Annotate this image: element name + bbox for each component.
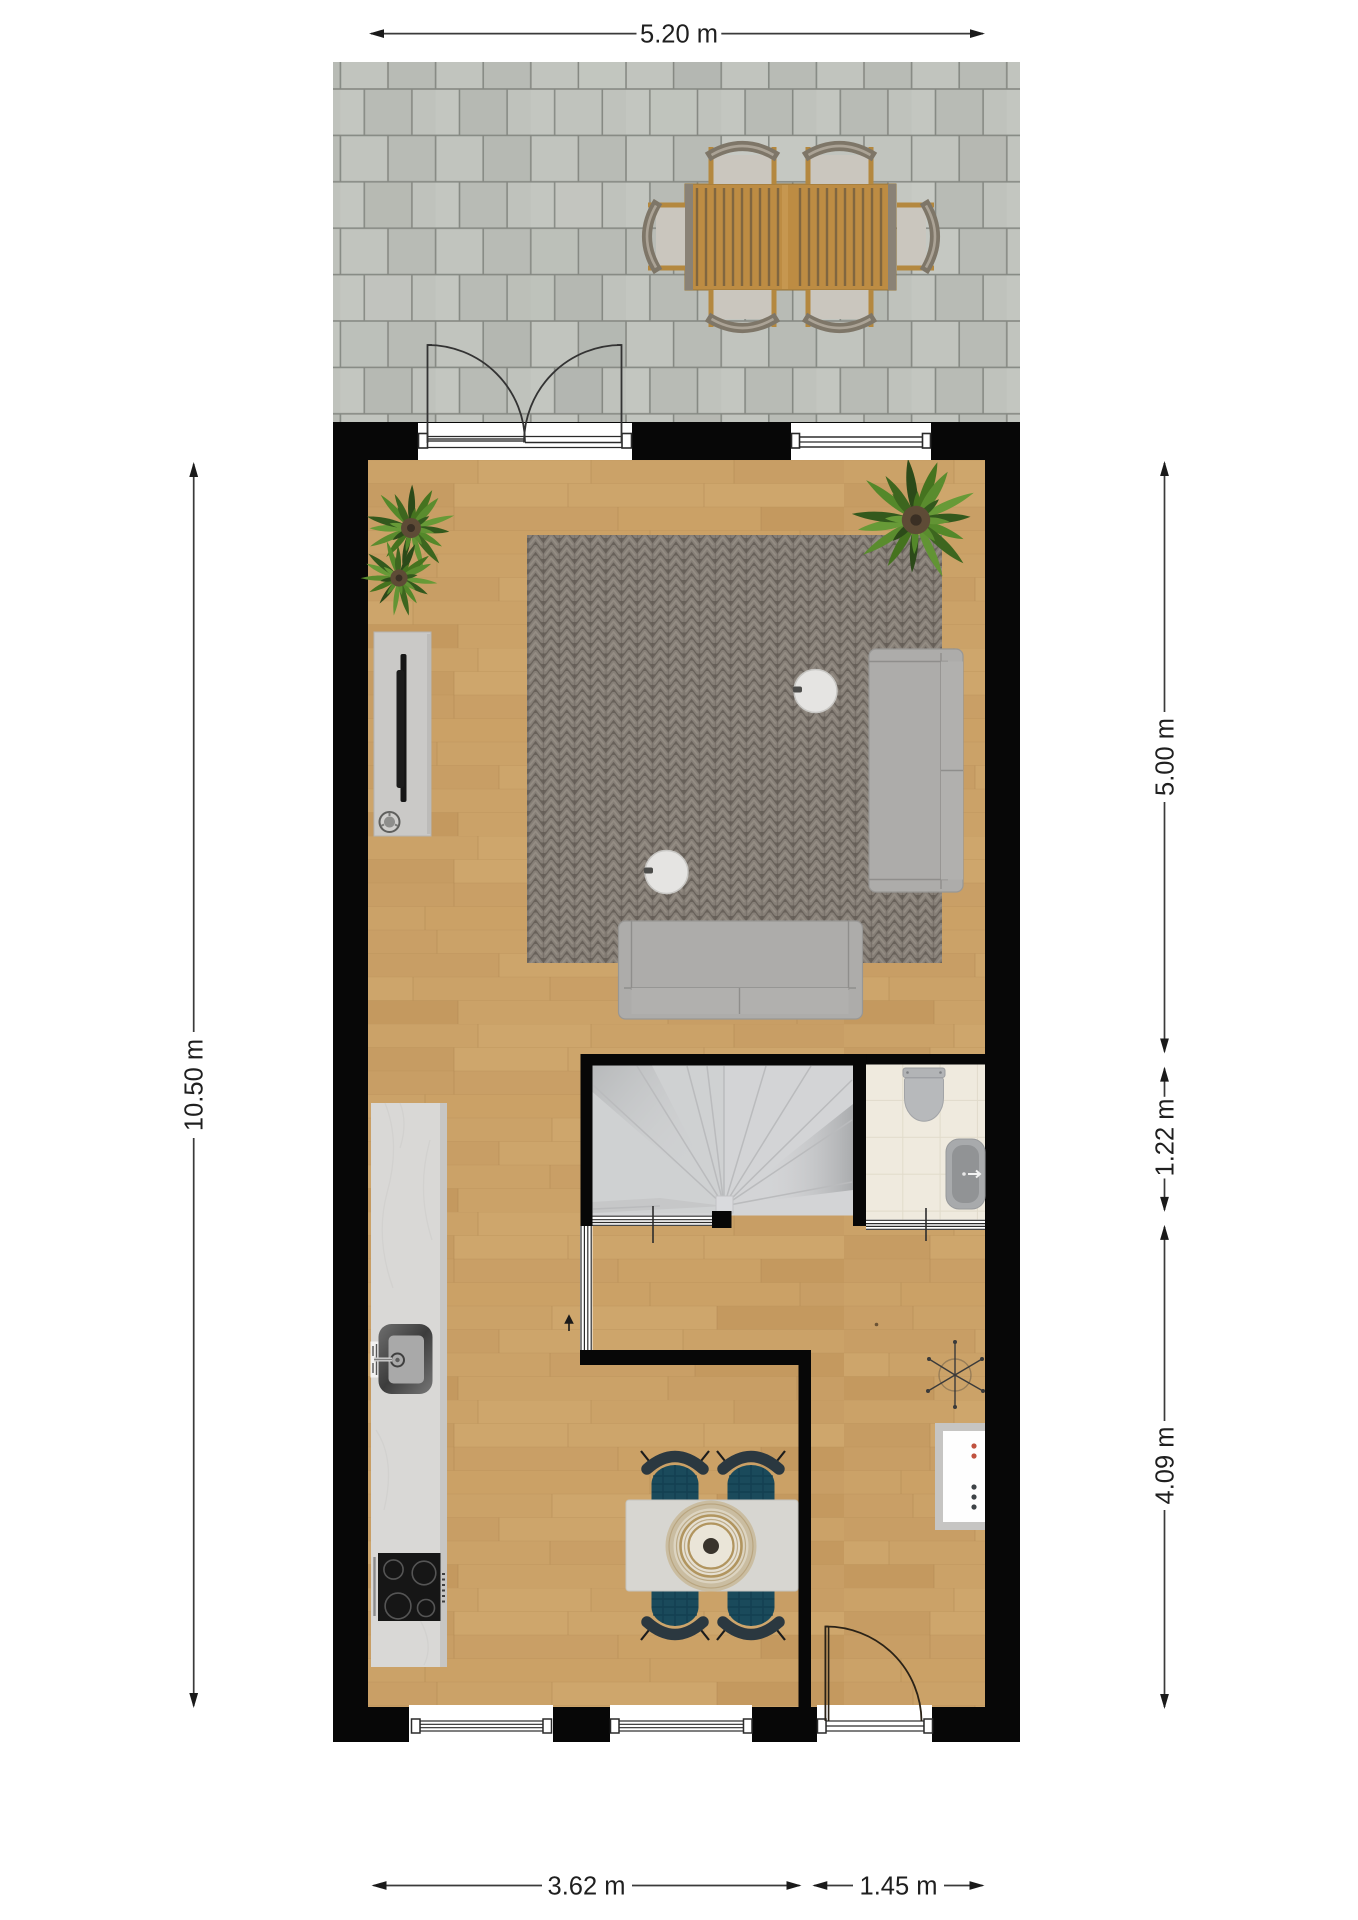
svg-text:3.62 m: 3.62 m (548, 1872, 626, 1900)
svg-text:4.09 m: 4.09 m (1151, 1427, 1179, 1505)
svg-text:10.50 m: 10.50 m (181, 1039, 209, 1131)
svg-text:5.00 m: 5.00 m (1151, 718, 1179, 796)
svg-text:1.22 m: 1.22 m (1151, 1099, 1179, 1177)
svg-text:5.20 m: 5.20 m (640, 21, 718, 49)
svg-text:1.45 m: 1.45 m (860, 1872, 938, 1900)
